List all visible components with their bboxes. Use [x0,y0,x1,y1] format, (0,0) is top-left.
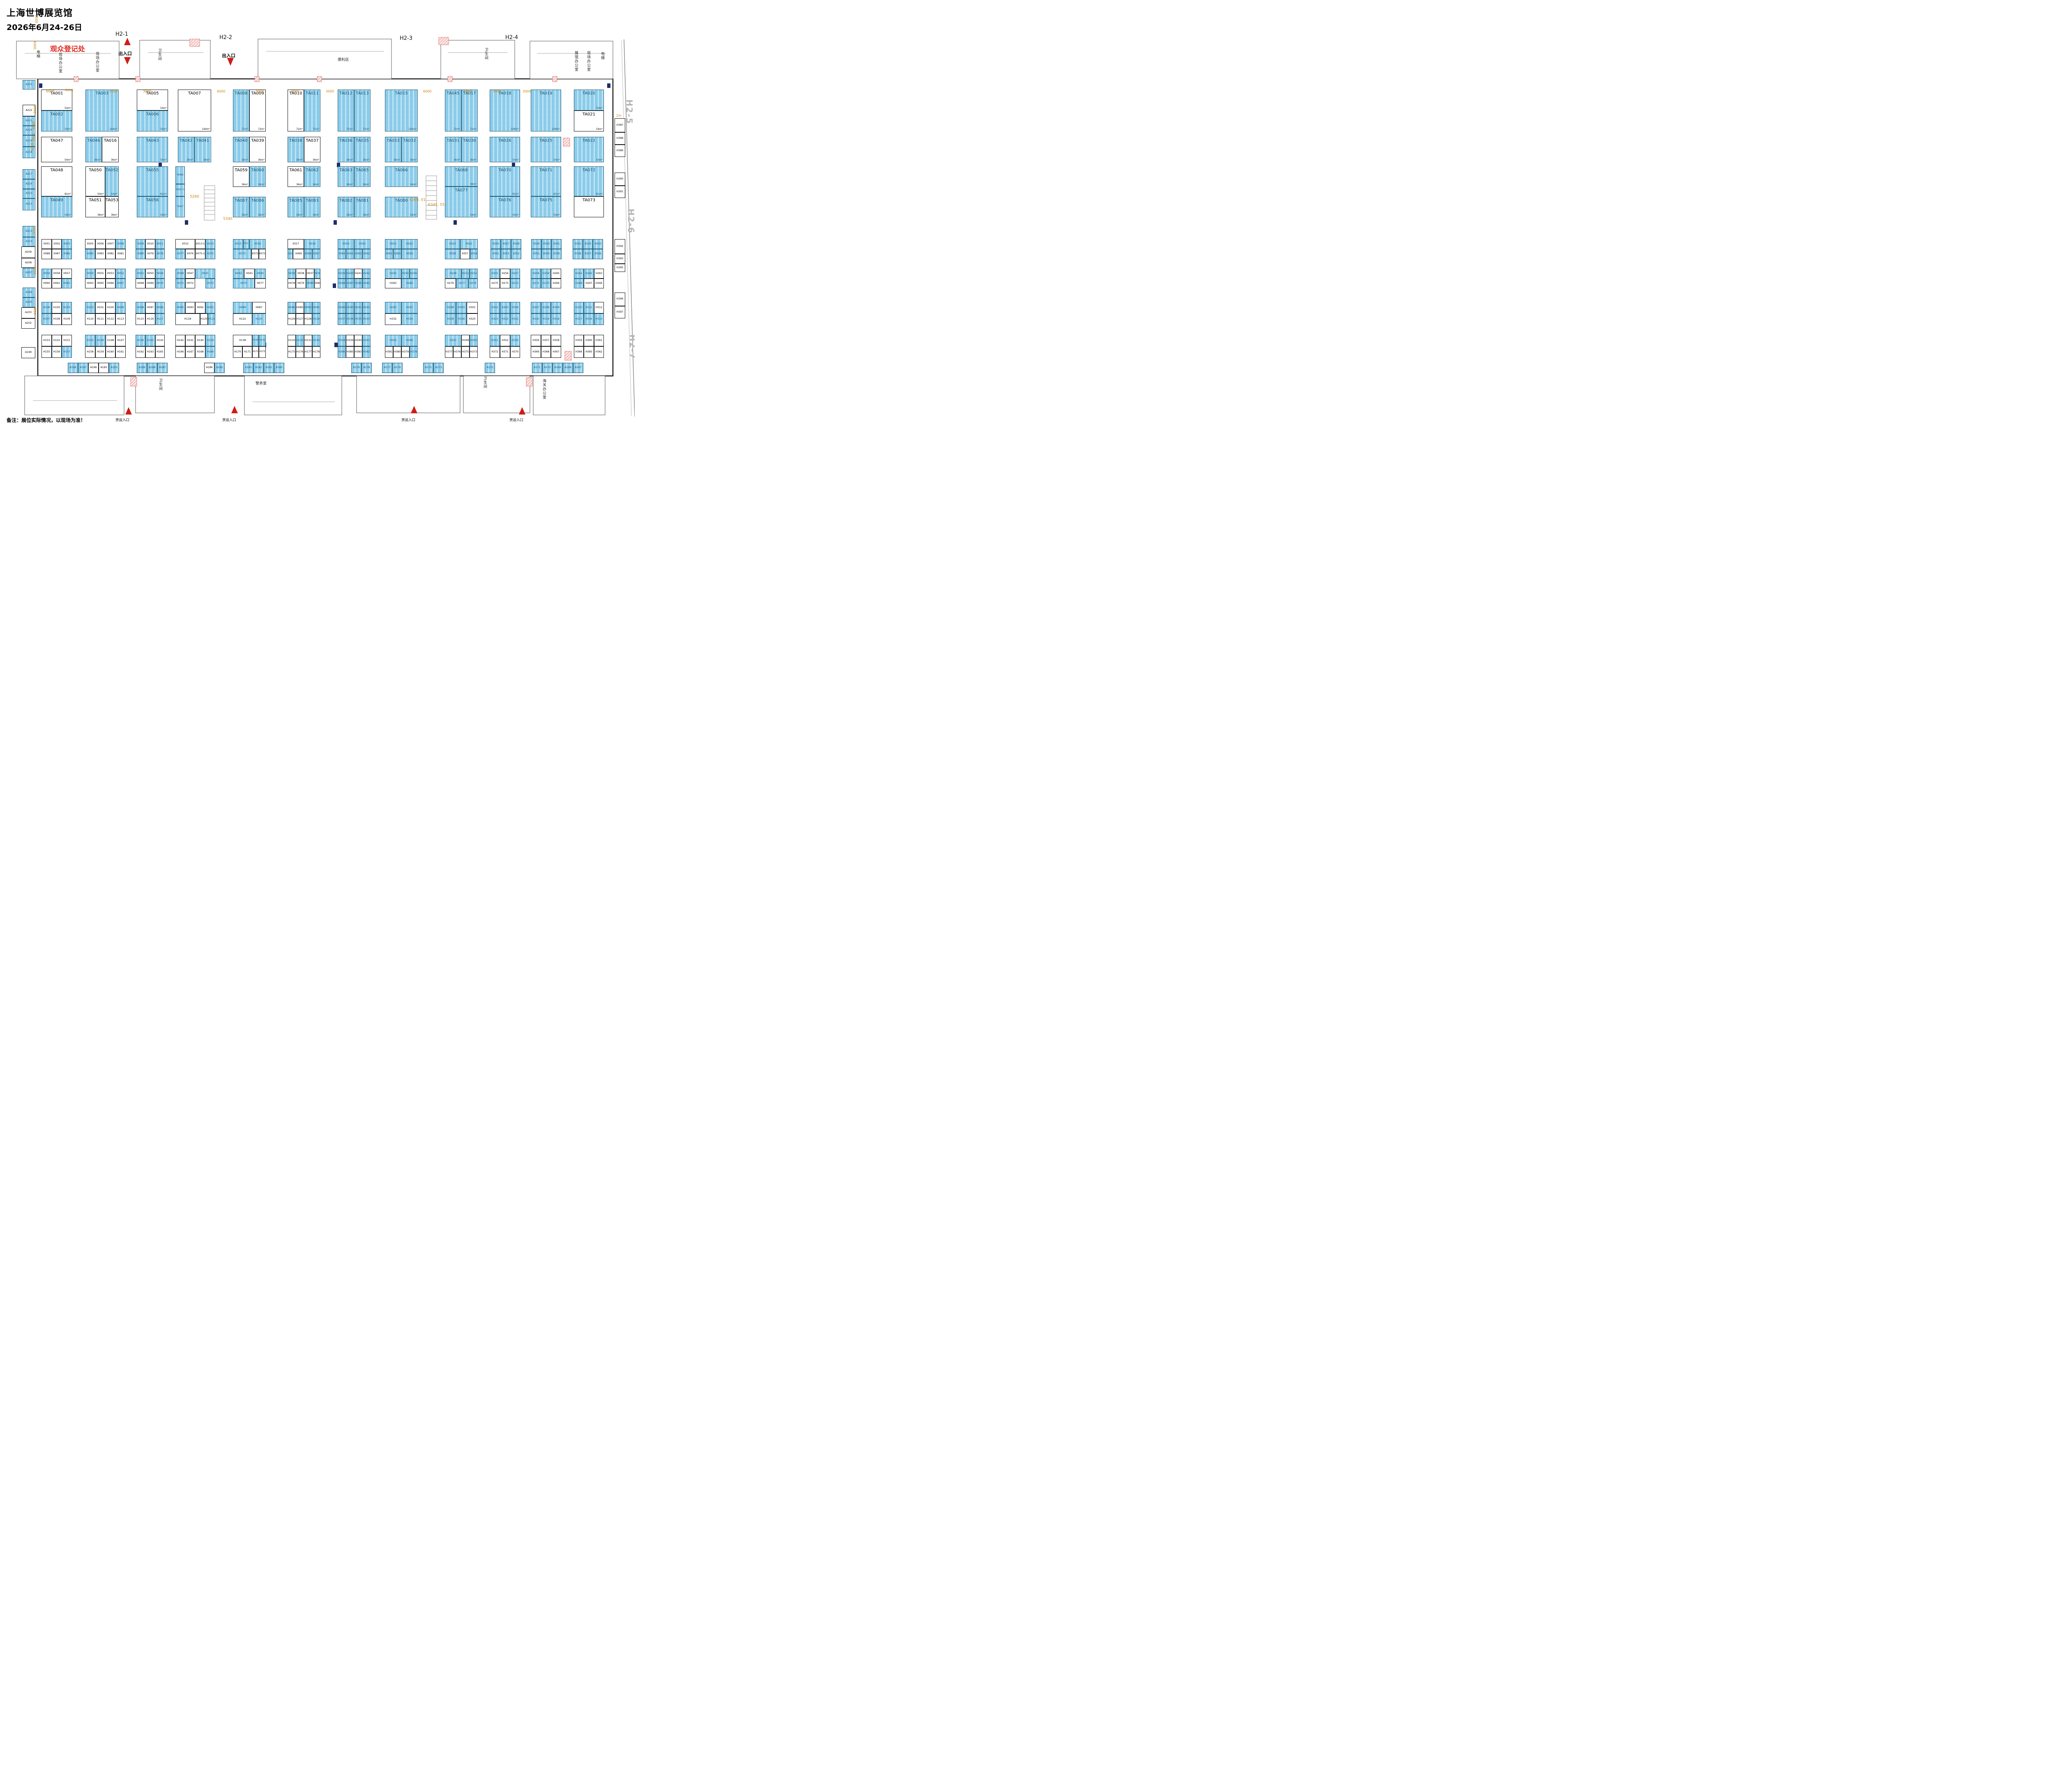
booth-H382[interactable]: H382 [362,346,371,358]
booth-TA011[interactable]: TA01172m² [304,90,320,131]
booth-H380[interactable]: H380 [393,346,401,358]
booth-H131[interactable]: H131 [304,335,312,346]
booth-TA016[interactable]: TA01636m² [102,137,119,162]
booth-H395[interactable]: H395 [615,264,625,272]
booth-A217[interactable]: A217 [23,169,35,179]
booth-H068[interactable]: H068 [136,279,145,288]
booth-H169[interactable]: H169 [205,346,215,358]
booth-H108[interactable]: H108 [52,313,62,325]
booth-H311[interactable]: H311 [584,302,594,313]
booth-X017[interactable]: X017 [288,239,304,249]
booth-TA039[interactable]: TA03936m² [249,137,266,162]
booth-H105[interactable]: H105 [52,302,62,313]
booth-X067[interactable]: X067 [312,249,320,259]
booth-H262[interactable]: H262 [584,269,594,279]
booth-H155[interactable]: H155 [41,346,52,358]
booth-H362[interactable]: H362 [594,346,604,358]
booth-H163[interactable]: H163 [145,346,155,358]
booth-A195[interactable]: A195 [99,363,109,373]
booth-X028[interactable]: X028 [511,239,521,249]
booth-TA065[interactable]: TA06536m² [354,166,371,187]
booth-TA020[interactable]: TA02054m² [574,90,604,111]
booth-H256[interactable]: H256 [500,269,510,279]
booth-TA057-1[interactable]: TA057-1 [175,184,185,196]
booth-X022[interactable]: X022 [401,239,418,249]
booth-H347[interactable]: H347 [445,335,461,346]
booth-H077[interactable]: H077 [255,279,266,288]
booth-H106[interactable]: H106 [41,302,52,313]
booth-X015-1[interactable]: X015-1 [243,239,249,249]
booth-TA056[interactable]: TA05654m² [137,196,168,217]
booth-TA072[interactable]: TA07281m² [574,166,604,196]
booth-H385[interactable]: H385 [346,346,354,358]
booth-X070[interactable]: X070 [288,249,293,259]
booth-H045[interactable]: H045 [195,269,215,279]
booth-H342[interactable]: H342 [385,335,401,346]
booth-H293[interactable]: H293 [385,302,401,313]
booth-H240[interactable]: H240 [346,269,354,279]
booth-H369[interactable]: H369 [531,346,541,358]
booth-H276[interactable]: H276 [468,279,478,288]
booth-H148[interactable]: H148 [106,335,115,346]
booth-A172[interactable]: A172 [485,363,495,373]
booth-X036[interactable]: X036 [593,249,603,259]
booth-H315[interactable]: H315 [594,313,604,325]
booth-X052[interactable]: X052 [511,249,521,259]
booth-H056[interactable]: H056 [85,269,95,279]
booth-H320[interactable]: H320 [531,313,541,325]
booth-TA060[interactable]: TA06036m² [249,166,266,187]
booth-H289[interactable]: H289 [338,302,346,313]
booth-X025[interactable]: X025 [460,239,478,249]
booth-H352[interactable]: H352 [500,335,510,346]
booth-TA083[interactable]: TA08336m² [304,197,320,217]
booth-TA017[interactable]: TA01772m² [461,90,478,131]
booth-H259[interactable]: H259 [541,269,551,279]
booth-A186[interactable]: A186 [204,363,214,373]
booth-H178[interactable]: H178 [312,346,320,358]
booth-H397[interactable]: H397 [615,306,625,318]
booth-A179[interactable]: A179 [351,363,362,373]
booth-X051[interactable]: X051 [531,249,541,259]
booth-X026[interactable]: X026 [490,239,501,249]
booth-H326[interactable]: H326 [456,313,467,325]
booth-H258[interactable]: H258 [531,269,541,279]
booth-X001[interactable]: X001 [41,239,52,249]
booth-H316[interactable]: H316 [584,313,594,325]
booth-A188[interactable]: A188 [147,363,157,373]
booth-TA038[interactable]: TA03836m² [288,137,304,162]
booth-X073[interactable]: X073 [233,249,251,259]
booth-H143[interactable]: H143 [155,335,165,346]
booth-H075[interactable]: H075 [233,279,255,288]
booth-X057[interactable]: X057 [460,249,470,259]
booth-H177[interactable]: H177 [304,346,312,358]
booth-A181[interactable]: A181 [264,363,274,373]
booth-H038[interactable]: H038 [296,269,306,279]
booth-H310[interactable]: H310 [574,302,584,313]
booth-H099[interactable]: H099 [115,302,126,313]
booth-X085[interactable]: X085 [85,249,95,259]
booth-TA082[interactable]: TA08236m² [338,197,354,217]
booth-X008[interactable]: X008 [115,239,126,249]
booth-H096[interactable]: H096 [155,302,165,313]
booth-A206[interactable]: A206 [23,288,35,297]
booth-A187[interactable]: A187 [157,363,168,373]
booth-TA002[interactable]: TA00254m² [41,111,72,131]
booth-H113[interactable]: H113 [115,313,126,325]
booth-A210[interactable]: A210 [23,237,35,246]
booth-X009[interactable]: X009 [136,239,145,249]
booth-H261[interactable]: H261 [574,269,584,279]
booth-H161[interactable]: H161 [115,346,126,358]
booth-H365[interactable]: H365 [584,346,594,358]
booth-H246[interactable]: H246 [410,269,418,279]
booth-H377[interactable]: H377 [445,346,453,358]
booth-TA018[interactable]: TA018108m² [490,90,520,131]
booth-H067[interactable]: H067 [115,279,126,288]
booth-H042[interactable]: H042 [233,269,244,279]
booth-H089[interactable]: H089 [233,302,252,313]
booth-X066[interactable]: X066 [338,249,346,259]
booth-H248[interactable]: H248 [445,269,461,279]
booth-A223[interactable]: A223 [23,80,35,90]
booth-H255[interactable]: H255 [490,269,500,279]
booth-H050[interactable]: H050 [145,269,155,279]
booth-H103[interactable]: H103 [62,302,72,313]
booth-TA013[interactable]: TA01372m² [354,90,371,131]
booth-H053[interactable]: H053 [106,269,115,279]
booth-TA066[interactable]: TA06654m² [385,166,418,187]
booth-H272[interactable]: H272 [510,279,520,288]
booth-H339[interactable]: H339 [346,335,354,346]
booth-H292[interactable]: H292 [362,302,371,313]
booth-H280[interactable]: H280 [401,279,418,288]
booth-H057[interactable]: H057 [62,269,72,279]
booth-H066[interactable]: H066 [106,279,115,288]
booth-A205[interactable]: A205 [23,297,35,307]
booth-H329[interactable]: H329 [401,313,418,325]
booth-H139[interactable]: H139 [205,335,215,346]
booth-H305[interactable]: H305 [500,302,510,313]
booth-TA025[interactable]: TA02554m² [531,137,561,162]
booth-X027[interactable]: X027 [501,239,511,249]
booth-H070[interactable]: H070 [155,279,165,288]
booth-A182[interactable]: A182 [253,363,264,373]
booth-H340[interactable]: H340 [354,335,362,346]
booth-X080[interactable]: X080 [136,249,145,259]
booth-H318[interactable]: H318 [551,313,561,325]
booth-TA037[interactable]: TA03736m² [304,137,320,162]
booth-H100[interactable]: H100 [106,302,115,313]
booth-X071[interactable]: X071 [259,249,266,259]
booth-H312[interactable]: H312 [594,302,604,313]
booth-H080[interactable]: H080 [306,279,314,288]
booth-TA006[interactable]: TA00654m² [137,111,168,131]
booth-X021[interactable]: X021 [385,239,401,249]
booth-H081[interactable]: H081 [314,279,320,288]
booth-X012[interactable]: X012 [175,239,195,249]
booth-H162[interactable]: H162 [136,346,145,358]
booth-A209[interactable]: A209 [21,246,35,258]
booth-H048[interactable]: H048 [175,269,185,279]
booth-H109[interactable]: H109 [62,313,72,325]
booth-H371[interactable]: H371 [500,346,510,358]
booth-TA043[interactable]: TA04354m² [137,137,168,162]
booth-X011[interactable]: X011 [155,239,165,249]
booth-H122[interactable]: H122 [233,313,252,325]
booth-X065[interactable]: X065 [346,249,354,259]
booth-H098[interactable]: H098 [136,302,145,313]
booth-TA053[interactable]: TA05336m² [105,196,119,217]
booth-H393[interactable]: H393 [615,254,625,264]
booth-TA055[interactable]: TA05581m² [137,166,168,196]
booth-H286[interactable]: H286 [354,279,362,288]
booth-H151[interactable]: H151 [62,335,72,346]
booth-X055[interactable]: X055 [490,249,501,259]
booth-H062[interactable]: H062 [62,279,72,288]
booth-A215[interactable]: A215 [23,189,35,198]
booth-TA021[interactable]: TA02154m² [574,111,604,131]
booth-H167[interactable]: H167 [185,346,195,358]
booth-H112[interactable]: H112 [106,313,115,325]
booth-TA057[interactable]: TA057 [175,196,185,217]
booth-H341[interactable]: H341 [362,335,371,346]
booth-H061[interactable]: H061 [52,279,62,288]
booth-H092[interactable]: H092 [195,302,205,313]
booth-TA070[interactable]: TA07081m² [490,166,520,196]
booth-H157[interactable]: H157 [62,346,72,358]
booth-H257[interactable]: H257 [510,269,520,279]
booth-X072[interactable]: X072 [251,249,259,259]
booth-X053[interactable]: X053 [501,249,511,259]
booth-A213[interactable]: A213 [23,198,35,210]
booth-H381[interactable]: H381 [385,346,393,358]
booth-TA022[interactable]: TA02254m² [574,137,604,162]
booth-TA073[interactable]: TA073 [574,196,604,217]
booth-H159[interactable]: H159 [95,346,106,358]
booth-X056[interactable]: X056 [470,249,478,259]
booth-H175[interactable]: H175 [288,346,296,358]
booth-X023[interactable]: X023 [445,239,460,249]
booth-H322[interactable]: H322 [500,313,510,325]
booth-X077[interactable]: X077 [175,249,185,259]
booth-H051[interactable]: H051 [136,269,145,279]
booth-H102[interactable]: H102 [85,302,95,313]
booth-X007[interactable]: X007 [106,239,115,249]
booth-TA036[interactable]: TA03636m² [338,137,354,162]
booth-H176[interactable]: H176 [296,346,304,358]
booth-H325[interactable]: H325 [467,313,478,325]
booth-H145[interactable]: H145 [145,335,155,346]
booth-X069[interactable]: X069 [293,249,304,259]
booth-H168[interactable]: H168 [195,346,205,358]
booth-TA048[interactable]: TA04881m² [41,166,72,196]
booth-TA041[interactable]: TA04136m² [194,137,211,162]
booth-H269[interactable]: H269 [551,279,561,288]
booth-H383[interactable]: H383 [354,346,362,358]
booth-TA003[interactable]: TA003144m² [85,90,119,131]
booth-X038[interactable]: X038 [573,249,583,259]
booth-H086[interactable]: H086 [288,302,296,313]
booth-H307[interactable]: H307 [531,302,541,313]
booth-H359[interactable]: H359 [574,335,584,346]
booth-H135[interactable]: H135 [259,335,266,346]
booth-H378[interactable]: H378 [410,346,418,358]
booth-H338[interactable]: H338 [338,335,346,346]
booth-A169[interactable]: A169 [553,363,563,373]
booth-X060[interactable]: X060 [393,249,401,259]
booth-H297[interactable]: H297 [401,302,418,313]
booth-H063[interactable]: H063 [85,279,95,288]
booth-TA050[interactable]: TA05054m² [85,166,105,196]
booth-X059[interactable]: X059 [401,249,418,259]
booth-H071[interactable]: H071 [175,279,185,288]
booth-TA061[interactable]: TA06136m² [288,166,304,187]
booth-A173[interactable]: A173 [433,363,444,373]
booth-H319[interactable]: H319 [541,313,551,325]
booth-H041[interactable]: H041 [244,269,255,279]
booth-H267[interactable]: H267 [584,279,594,288]
booth-H368[interactable]: H368 [541,346,551,358]
booth-X003[interactable]: X003 [62,239,72,249]
booth-A196[interactable]: A196 [88,363,99,373]
booth-H266[interactable]: H266 [594,279,604,288]
booth-TA033[interactable]: TA03336m² [385,137,401,162]
booth-X082[interactable]: X082 [106,249,115,259]
booth-H336[interactable]: H336 [346,313,354,325]
booth-X010[interactable]: X010 [145,239,155,249]
booth-H153[interactable]: H153 [41,335,52,346]
booth-X015[interactable]: X015 [233,239,243,249]
booth-H156[interactable]: H156 [52,346,62,358]
booth-H133[interactable]: H133 [288,335,296,346]
booth-A175[interactable]: A175 [423,363,433,373]
booth-H323[interactable]: H323 [490,313,500,325]
booth-H372[interactable]: H372 [490,346,500,358]
booth-TA019[interactable]: TA019108m² [531,90,561,131]
booth-H073[interactable]: H073 [205,279,215,288]
booth-A185[interactable]: A185 [214,363,225,373]
booth-TA012[interactable]: TA01272m² [338,90,354,131]
booth-X078[interactable]: X078 [155,249,165,259]
booth-TA010[interactable]: TA01072m² [288,90,304,131]
booth-X002[interactable]: X002 [52,239,62,249]
booth-X032[interactable]: X032 [573,239,583,249]
booth-H370[interactable]: H370 [510,346,520,358]
booth-H116[interactable]: H116 [145,313,155,325]
booth-H361[interactable]: H361 [594,335,604,346]
booth-TA058[interactable]: TA058 [175,166,185,184]
booth-H277[interactable]: H277 [456,279,468,288]
booth-H171[interactable]: H171 [242,346,252,358]
booth-H036[interactable]: H036 [314,269,320,279]
booth-A178[interactable]: A178 [362,363,372,373]
booth-H085[interactable]: H085 [296,302,304,313]
booth-H287[interactable]: H287 [346,279,354,288]
booth-H317[interactable]: H317 [574,313,584,325]
booth-H150[interactable]: H150 [85,335,95,346]
booth-H173[interactable]: H173 [259,346,266,358]
booth-H107[interactable]: H107 [41,313,52,325]
booth-H149[interactable]: H149 [95,335,106,346]
booth-X039[interactable]: X039 [551,249,562,259]
booth-TA076[interactable]: TA07654m² [490,196,520,217]
booth-H268[interactable]: H268 [574,279,584,288]
booth-X006[interactable]: X006 [95,239,106,249]
booth-H392[interactable]: H392 [615,239,625,254]
booth-H388[interactable]: H388 [615,132,625,145]
booth-H097[interactable]: H097 [145,302,155,313]
booth-H127[interactable]: H127 [296,313,304,325]
booth-X050[interactable]: X050 [541,249,551,259]
booth-X087[interactable]: X087 [52,249,62,259]
booth-H069[interactable]: H069 [145,279,155,288]
booth-H132[interactable]: H132 [296,335,304,346]
booth-H117[interactable]: H117 [155,313,165,325]
booth-H298[interactable]: H298 [445,302,456,313]
booth-TA005[interactable]: TA00554m² [137,90,168,111]
booth-H242[interactable]: H242 [362,269,371,279]
booth-TA081[interactable]: TA08136m² [354,197,371,217]
booth-H275[interactable]: H275 [490,279,500,288]
booth-X035[interactable]: X035 [593,239,603,249]
booth-TA047[interactable]: TA04754m² [41,137,72,162]
booth-X068[interactable]: X068 [304,249,312,259]
booth-H146[interactable]: H146 [136,335,145,346]
booth-H058[interactable]: H058 [52,269,62,279]
booth-H387[interactable]: H387 [615,118,625,132]
booth-H270[interactable]: H270 [541,279,551,288]
booth-H360[interactable]: H360 [584,335,594,346]
booth-X020[interactable]: X020 [354,239,371,249]
booth-H147[interactable]: H147 [115,335,126,346]
booth-X013-1[interactable]: X013-1 [195,239,205,249]
booth-X088[interactable]: X088 [41,249,52,259]
booth-A183[interactable]: A183 [243,363,253,373]
booth-H115[interactable]: H115 [136,313,145,325]
booth-X075[interactable]: X075 [205,249,215,259]
booth-H386[interactable]: H386 [338,346,346,358]
booth-H332[interactable]: H332 [385,313,401,325]
booth-A168[interactable]: A168 [563,363,573,373]
booth-TA062[interactable]: TA06236m² [304,166,320,187]
booth-H049[interactable]: H049 [155,269,165,279]
booth-H350[interactable]: H350 [470,335,478,346]
booth-TA051[interactable]: TA05136m² [85,196,105,217]
booth-H375[interactable]: H375 [461,346,470,358]
booth-H166[interactable]: H166 [175,346,185,358]
booth-H290[interactable]: H290 [346,302,354,313]
booth-H093[interactable]: H093 [185,302,195,313]
booth-TA077[interactable]: TA07754m² [445,187,478,217]
booth-A199[interactable]: A199 [21,347,35,358]
booth-TA042[interactable]: TA04236m² [178,137,194,162]
booth-H358[interactable]: H358 [551,335,561,346]
booth-H059[interactable]: H059 [41,269,52,279]
booth-TA075[interactable]: TA07554m² [531,196,561,217]
booth-H283[interactable]: H283 [385,279,401,288]
booth-A167[interactable]: A167 [573,363,583,373]
booth-H082[interactable]: H082 [312,302,320,313]
booth-H309[interactable]: H309 [551,302,561,313]
booth-A180[interactable]: A180 [274,363,284,373]
booth-H301[interactable]: H301 [467,302,478,313]
booth-X016[interactable]: X016 [249,239,266,249]
booth-H300[interactable]: H300 [456,302,467,313]
booth-H337[interactable]: H337 [338,313,346,325]
booth-H243[interactable]: H243 [385,269,401,279]
